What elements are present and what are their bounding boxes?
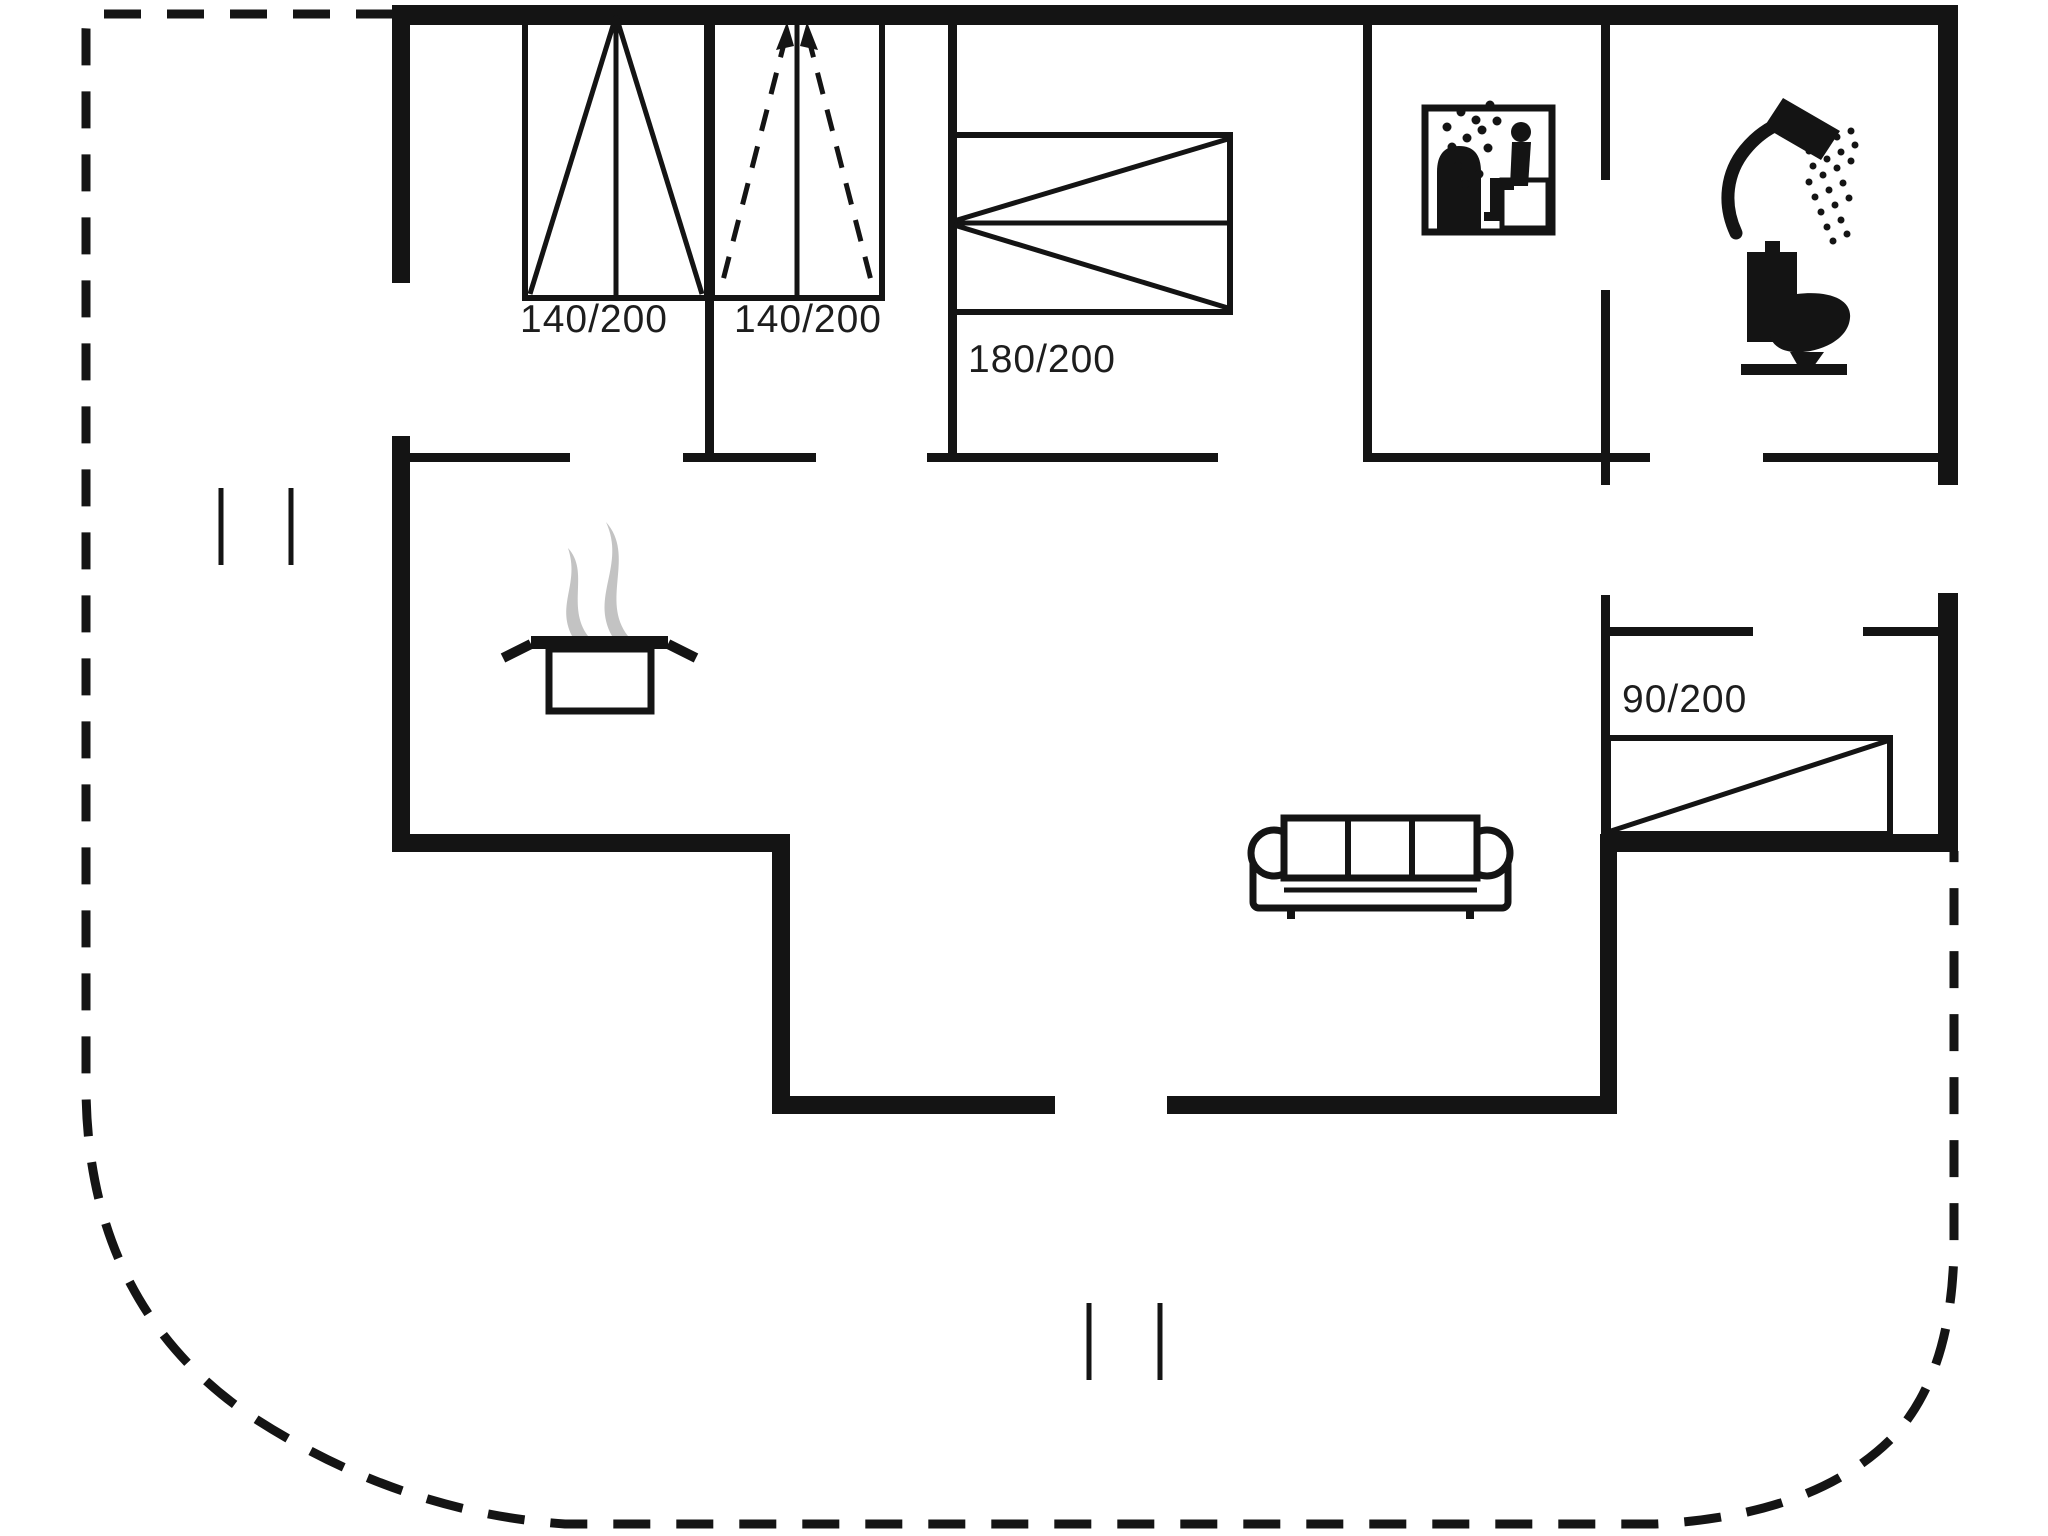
wall-segment (400, 834, 790, 852)
sauna-icon (1425, 101, 1552, 233)
terrace-step-marks (221, 488, 1160, 1380)
bed-size-label: 90/200 (1622, 678, 1747, 721)
bed-fold-line-dashed (720, 36, 786, 292)
bed-fold-line (1611, 741, 1887, 831)
sofa-leg (1287, 907, 1295, 919)
cooking-pot-icon (503, 522, 696, 711)
pot-handle (503, 644, 531, 658)
bed-size-label: 180/200 (968, 338, 1116, 381)
shower-icon (1728, 98, 1859, 245)
wall-segment (1600, 834, 1617, 1114)
pot-handle (668, 644, 696, 658)
toilet-icon (1741, 241, 1850, 375)
wall-segment (392, 436, 410, 852)
single-bed-4 (1608, 738, 1890, 834)
wall-segment (772, 834, 790, 1114)
sofa (1251, 818, 1510, 919)
double-bed-2 (712, 14, 882, 298)
floor-plan: 140/200 140/200 180/200 90/200 (0, 0, 2048, 1536)
interior-walls (405, 25, 1945, 845)
bed-fold-line (530, 16, 616, 294)
steam-swirl (605, 522, 628, 636)
bed-size-label: 140/200 (520, 298, 668, 341)
wall-segment (1604, 627, 1753, 636)
toilet-base (1741, 364, 1847, 375)
wall-segment (1938, 5, 1958, 485)
wall-segment (1863, 627, 1945, 636)
sofa-cushions (1284, 818, 1477, 878)
wall-segment (1601, 290, 1610, 485)
arrow-up-icon (800, 22, 818, 50)
wall-segment (927, 453, 1218, 462)
bed-size-label: 140/200 (734, 298, 882, 341)
wall-segment (1763, 453, 1945, 462)
toilet-flush-knob (1765, 241, 1780, 252)
wall-segment (778, 1096, 1055, 1114)
terrace-boundary (86, 14, 1954, 1524)
toilet-pedestal (1790, 352, 1824, 366)
shower-head (1764, 98, 1840, 160)
pot-body (549, 649, 651, 711)
bed-fold-line-dashed (808, 36, 874, 292)
wall-segment (683, 453, 816, 462)
wall-segment (392, 5, 410, 283)
double-bed-3 (952, 135, 1230, 312)
steam-swirl (566, 548, 588, 636)
arrow-up-icon (776, 22, 794, 50)
double-bed-1 (525, 14, 707, 298)
wall-segment (1601, 25, 1610, 180)
wall-segment (405, 453, 570, 462)
sofa-leg (1466, 907, 1474, 919)
bed-fold-line (954, 225, 1228, 308)
wall-segment (1363, 25, 1372, 462)
bed-fold-line (616, 16, 702, 294)
bed-fold-line (954, 139, 1228, 221)
wall-segment (1167, 1096, 1617, 1114)
exterior-walls (392, 5, 1958, 1114)
floor-plan-drawing: 140/200 140/200 180/200 90/200 (0, 0, 2048, 1536)
